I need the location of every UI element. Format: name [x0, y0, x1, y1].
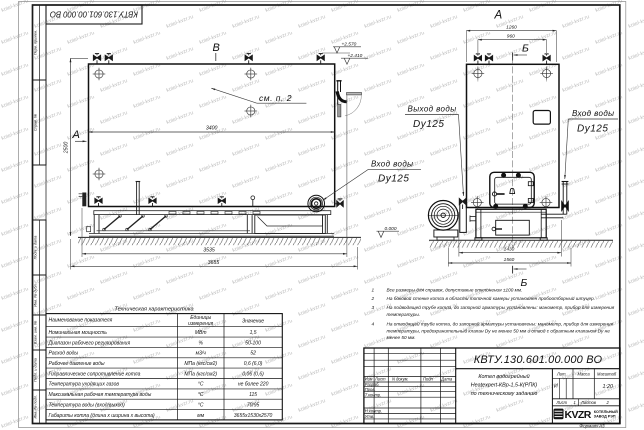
- svg-text:+2.410: +2.410: [348, 53, 363, 59]
- svg-text:°С: °С: [198, 392, 204, 398]
- svg-text:Котел водогрейный: Котел водогрейный: [478, 373, 529, 380]
- svg-text:Техническая характеристика: Техническая характеристика: [114, 307, 193, 313]
- svg-text:Dy125: Dy125: [413, 119, 444, 130]
- svg-text:измерения: измерения: [188, 321, 213, 327]
- svg-text:2: 2: [371, 296, 375, 301]
- svg-text:Подп: Подп: [423, 377, 434, 382]
- svg-text:На подводящей трубе котла, до: На подводящей трубе котла, до запорной а…: [387, 304, 615, 310]
- svg-text:менее 50 мм.: менее 50 мм.: [387, 335, 416, 340]
- svg-text:На боковой стенке котла в обла: На боковой стенке котла в области топочн…: [387, 295, 596, 301]
- svg-text:Н.контр.: Н.контр.: [365, 409, 382, 414]
- svg-text:Наименование показателя: Наименование показателя: [49, 318, 113, 324]
- svg-text:KVZR: KVZR: [565, 409, 592, 421]
- svg-text:Лит.: Лит.: [556, 372, 567, 377]
- svg-text:по техническому заданию: по техническому заданию: [471, 391, 538, 397]
- svg-text:МВт: МВт: [195, 330, 207, 336]
- svg-text:Справ. №: Справ. №: [33, 114, 37, 131]
- svg-text:°С: °С: [198, 382, 204, 388]
- svg-text:70/95: 70/95: [247, 402, 260, 408]
- svg-text:Формат А3: Формат А3: [579, 424, 605, 429]
- svg-text:0.000: 0.000: [385, 226, 397, 232]
- svg-text:В: В: [213, 42, 220, 54]
- svg-text:Утв.: Утв.: [365, 414, 374, 419]
- svg-text:52: 52: [250, 351, 256, 357]
- svg-text:Рабочее давление воды: Рабочее давление воды: [49, 361, 105, 367]
- svg-text:1560: 1560: [504, 257, 515, 263]
- svg-text:0,06 (0,6): 0,06 (0,6): [242, 371, 264, 377]
- svg-text:МПа (кгс/см2): МПа (кгс/см2): [184, 361, 217, 367]
- svg-text:50-100: 50-100: [245, 340, 261, 346]
- svg-text:Все размеры для справок, допус: Все размеры для справок, допустимые откл…: [387, 287, 523, 292]
- svg-text:3400: 3400: [206, 126, 218, 132]
- svg-text:4: 4: [372, 322, 375, 327]
- svg-text:%: %: [198, 340, 203, 346]
- svg-text:МПа (кгс/см2): МПа (кгс/см2): [184, 371, 217, 377]
- svg-text:960: 960: [507, 33, 515, 39]
- svg-text:м3/ч: м3/ч: [196, 351, 207, 357]
- svg-text:см. п. 2: см. п. 2: [259, 93, 292, 103]
- svg-text:1: 1: [574, 400, 576, 405]
- svg-text:Габариты котла (длина х ширина: Габариты котла (длина х ширина х высота): [49, 413, 156, 419]
- svg-text:Расход воды: Расход воды: [49, 351, 79, 357]
- svg-text:Температура воды (вход/выход): Температура воды (вход/выход): [49, 402, 126, 408]
- svg-text:N докум.: N докум.: [392, 377, 409, 382]
- svg-text:А: А: [494, 9, 503, 21]
- svg-text:Листов: Листов: [580, 400, 597, 405]
- svg-text:Dy125: Dy125: [378, 174, 409, 185]
- svg-text:На отводящей трубе котла, до з: На отводящей трубе котла, до запорной ар…: [387, 321, 614, 327]
- svg-text:115: 115: [249, 392, 257, 398]
- svg-text:Дата: Дата: [440, 377, 453, 382]
- svg-text:+2.570: +2.570: [342, 41, 357, 47]
- svg-text:Вход воды: Вход воды: [572, 109, 614, 118]
- svg-text:Вход воды: Вход воды: [371, 160, 413, 169]
- svg-text:И: И: [554, 384, 558, 390]
- svg-text:Б: Б: [522, 42, 529, 54]
- svg-text:Перв. примен.: Перв. примен.: [33, 30, 37, 55]
- svg-text:3: 3: [372, 305, 375, 310]
- svg-text:1260: 1260: [506, 24, 517, 30]
- svg-text:3655х1530х2570: 3655х1530х2570: [234, 413, 273, 419]
- svg-text:1,5: 1,5: [250, 330, 257, 336]
- svg-text:не более 220: не более 220: [238, 382, 269, 388]
- svg-text:Инв. № подл.: Инв. № подл.: [33, 395, 37, 419]
- svg-text:КОТЕЛЬНЫЙ: КОТЕЛЬНЫЙ: [594, 410, 618, 414]
- svg-text:Подп. и дата: Подп. и дата: [33, 236, 37, 260]
- svg-text:Подп. и дата: Подп. и дата: [33, 358, 37, 382]
- svg-text:1:20: 1:20: [603, 384, 614, 390]
- svg-text:3655: 3655: [208, 260, 220, 266]
- svg-text:2500: 2500: [63, 142, 69, 155]
- svg-text:Heatexpert-КВр-1,5-К(РПК): Heatexpert-КВр-1,5-К(РПК): [471, 383, 538, 389]
- svg-text:Температура уходящих газов: Температура уходящих газов: [49, 382, 120, 388]
- svg-text:Пров.: Пров.: [365, 387, 376, 392]
- svg-text:Т.контр.: Т.контр.: [365, 392, 382, 397]
- svg-text:Выход воды: Выход воды: [408, 105, 457, 114]
- svg-text:Максимальная рабочая температу: Максимальная рабочая температура воды: [49, 392, 152, 398]
- svg-text:Dy125: Dy125: [577, 124, 608, 135]
- svg-text:Номинальная мощность: Номинальная мощность: [49, 330, 108, 336]
- svg-text:ЗАВОД РЭП: ЗАВОД РЭП: [594, 415, 616, 419]
- svg-text:0,6 (6,0): 0,6 (6,0): [244, 361, 263, 367]
- svg-text:Инв. № дубл.: Инв. № дубл.: [33, 283, 37, 306]
- svg-text:1430: 1430: [504, 247, 515, 253]
- svg-text:температуры.: температуры.: [387, 312, 421, 317]
- svg-text:Диапазон рабочего регулировани: Диапазон рабочего регулирования: [48, 340, 131, 346]
- svg-text:А: А: [72, 129, 80, 141]
- svg-text:Лист: Лист: [556, 400, 568, 405]
- svg-text:1: 1: [372, 287, 375, 292]
- svg-text:температуры, предохранительный: температуры, предохранительный клапан Dу…: [387, 327, 611, 333]
- svg-text:°С: °С: [198, 402, 204, 408]
- svg-text:Взам. инв. №: Взам. инв. №: [33, 321, 37, 344]
- svg-text:КВТУ.130.601.00.000 ВО: КВТУ.130.601.00.000 ВО: [474, 354, 603, 366]
- svg-text:Масса: Масса: [578, 372, 591, 377]
- svg-text:мм: мм: [197, 413, 204, 419]
- svg-text:3535: 3535: [203, 248, 215, 254]
- svg-text:Значение: Значение: [242, 319, 264, 325]
- svg-text:Масштаб: Масштаб: [597, 372, 617, 377]
- svg-text:КВТУ.130.601.00.000 ВО: КВТУ.130.601.00.000 ВО: [50, 9, 138, 18]
- svg-text:Гидравлическое сопротивление к: Гидравлическое сопротивление котла: [49, 371, 141, 377]
